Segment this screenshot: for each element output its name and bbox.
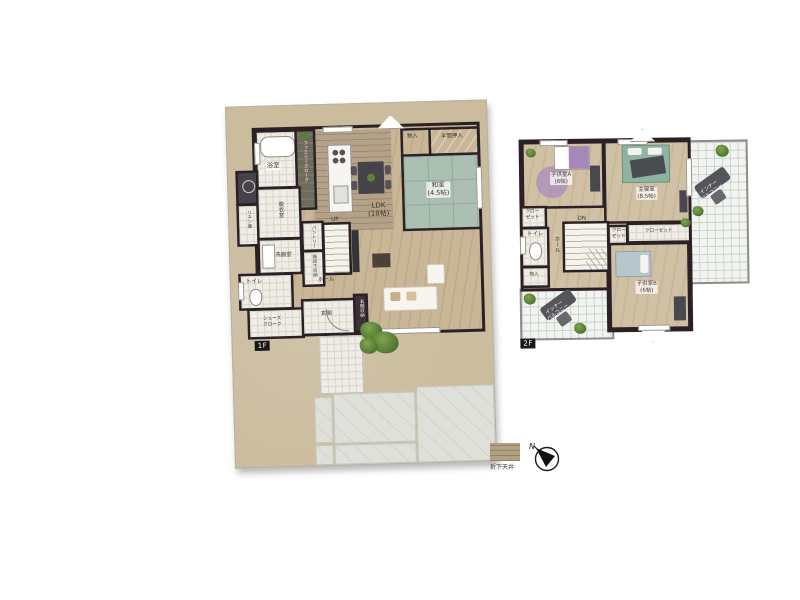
room-toilet-2f: トイレ	[523, 229, 548, 265]
kids-b-name: 子供室B	[637, 281, 657, 287]
floor1-tag: 1F	[255, 341, 271, 351]
window	[238, 282, 245, 300]
bay-window-icon	[640, 330, 666, 343]
stove-icon	[331, 148, 345, 164]
room-closet-wide-label: クローゼット	[644, 228, 674, 234]
washitsu-size: (4.5帖)	[427, 188, 449, 197]
compass-n-letter: N	[529, 442, 535, 451]
room-genkan: 玄関	[303, 300, 354, 333]
shrub-icon	[574, 323, 586, 334]
window	[686, 158, 693, 196]
shoes-cloak-line2: クローク	[263, 322, 282, 328]
shrub-icon	[716, 145, 729, 157]
room-oshiire: 半間押入	[431, 129, 478, 154]
room-closet-small-label: クロー ゼット	[611, 228, 627, 239]
pillow-icon	[628, 148, 642, 155]
stairs-dn-label: DN	[577, 216, 587, 223]
room-shoes-cloak: シューズ クローク	[250, 310, 303, 337]
dining-chair	[385, 180, 391, 189]
closet-line1: クロー	[612, 228, 626, 233]
sofa-cushion	[406, 291, 416, 300]
dining-chair	[385, 165, 391, 174]
bay-window-icon	[376, 115, 404, 130]
closet-line1: クロー	[526, 209, 540, 214]
dining-chair	[351, 166, 357, 175]
plant-icon	[681, 218, 691, 227]
floor1-plan: 浴室 ファミリークローク 物入 半間押入 和室 (4.5帖) LDK (18帖)	[225, 99, 497, 468]
sink-icon	[333, 185, 348, 203]
bed-kids-b	[615, 251, 651, 278]
window	[323, 126, 353, 133]
room-kids-b-label: 子供室B (6帖)	[636, 281, 658, 294]
plant-icon	[526, 148, 536, 157]
room-kids-a-label: 子供室A (6帖)	[550, 172, 572, 185]
bed-cover	[569, 147, 589, 169]
driveway-slab	[315, 445, 334, 465]
room-washitsu: 和室 (4.5帖)	[403, 155, 479, 229]
genkan-storage-label: 玄関収納	[357, 299, 364, 318]
dining-chair	[351, 181, 357, 190]
hall-1f-label: ホール	[317, 277, 336, 284]
armchair	[426, 264, 445, 284]
kids-a-size: (6帖)	[555, 179, 568, 185]
room-monoire-2f-label: 物入	[528, 272, 539, 278]
floor2-plan: インナー バルコニー インナー バルコニー 子供室A (6帖)	[518, 133, 753, 352]
shrub-icon	[524, 293, 536, 304]
room-monoire-label: 物入	[406, 133, 419, 140]
bathtub-icon	[260, 136, 296, 158]
table-plant-icon	[367, 174, 375, 182]
room-closet-small: クロー ゼット	[610, 227, 626, 245]
room-closet-wide: クローゼット	[629, 224, 689, 241]
driveway-slab	[333, 392, 416, 444]
floor2-tag: 2F	[520, 338, 536, 348]
room-family-cloak-label: ファミリークローク	[301, 140, 309, 182]
room-closet-left-label: クロー ゼット	[525, 209, 541, 220]
dining-table	[358, 161, 385, 194]
room-toilet-1f-label: トイレ	[245, 279, 264, 286]
room-shoes-cloak-label: シューズ クローク	[262, 316, 283, 328]
room-toilet-2f-label: トイレ	[526, 231, 545, 238]
sofa-cushion	[390, 292, 400, 301]
legend-dropped-ceiling-swatch	[490, 443, 520, 461]
room-genkan-label: 玄関	[320, 311, 333, 318]
blanket-icon	[630, 155, 666, 178]
hall-2f-label: ホール	[552, 236, 560, 253]
bed-master	[622, 145, 671, 184]
room-master: 主寝室 (8.5帖)	[606, 142, 689, 221]
room-linen: リネン庫	[239, 206, 258, 244]
room-ldk-label: LDK (18帖)	[367, 201, 391, 218]
washer-icon	[242, 180, 255, 193]
room-washitsu-label: 和室 (4.5帖)	[426, 181, 450, 197]
balcony-bottom-left: インナー バルコニー	[520, 287, 615, 340]
room-family-cloak: ファミリークローク	[297, 131, 315, 207]
kids-a-name: 子供室A	[551, 172, 571, 178]
under-stairs-label: 階段下収納	[310, 254, 317, 277]
toilet-icon	[529, 242, 542, 260]
desk-icon	[674, 296, 686, 320]
room-kids-b: 子供室B (6帖)	[611, 244, 688, 327]
pillow-icon	[648, 148, 662, 155]
coffee-table	[372, 253, 390, 267]
room-master-label: 主寝室 (8.5帖)	[636, 187, 657, 200]
washer-nook	[238, 173, 257, 203]
shrub-icon	[692, 206, 703, 216]
room-monoire-2f: 物入	[523, 268, 547, 285]
kitchen-counter	[327, 144, 353, 213]
driveway-slab	[334, 443, 417, 465]
pillow-icon	[640, 255, 648, 273]
bay-window-icon	[629, 129, 655, 142]
desk-icon	[590, 165, 600, 191]
stair-fan-treads	[586, 249, 607, 270]
legend: 折下天井 N	[488, 440, 578, 480]
kids-b-size: (6帖)	[640, 287, 653, 293]
room-oshiire-label: 半間押入	[440, 133, 464, 140]
room-toilet-1f: トイレ	[241, 275, 292, 308]
closet-line2: ゼット	[526, 215, 540, 220]
balcony-right: インナー バルコニー	[688, 139, 750, 284]
bed-kids-a	[554, 146, 590, 171]
legend-dropped-ceiling-label: 折下天井	[489, 464, 515, 471]
driveway-slab	[314, 397, 333, 443]
room-senmen-label: 洗面室	[274, 252, 293, 259]
room-pantry-label: パントリー	[309, 225, 316, 248]
tv-board	[351, 230, 359, 272]
room-datsui: 脱衣室	[258, 189, 299, 238]
master-name: 主寝室	[638, 187, 655, 193]
room-datsui-label: 脱衣室	[276, 201, 284, 218]
ldk-size: (18帖)	[368, 210, 390, 219]
room-bath: 浴室	[257, 132, 298, 187]
driveway-slab	[416, 384, 496, 462]
stairs-up-label: UP	[330, 217, 340, 224]
room-closet-left: クロー ゼット	[523, 208, 545, 226]
stairs-1f	[324, 224, 349, 273]
compass-north-icon: N	[528, 440, 562, 474]
room-linen-label: リネン庫	[245, 210, 252, 229]
window	[254, 143, 261, 165]
stairs-2f	[565, 223, 608, 270]
plant-icon	[300, 132, 309, 138]
window	[540, 140, 568, 146]
room-pantry: パントリー	[303, 223, 322, 249]
toilet-icon	[249, 289, 262, 306]
sofa	[383, 286, 438, 311]
entry-porch	[318, 335, 364, 394]
room-bath-label: 浴室	[266, 162, 281, 170]
tree-icon	[360, 338, 378, 354]
room-monoire: 物入	[403, 130, 430, 155]
closet-line2: ゼット	[612, 234, 626, 239]
room-senmen: 洗面室	[260, 240, 301, 273]
room-kids-a: 子供室A (6帖)	[524, 143, 603, 206]
master-size: (8.5帖)	[637, 193, 656, 199]
window	[476, 167, 483, 209]
window	[520, 237, 526, 255]
